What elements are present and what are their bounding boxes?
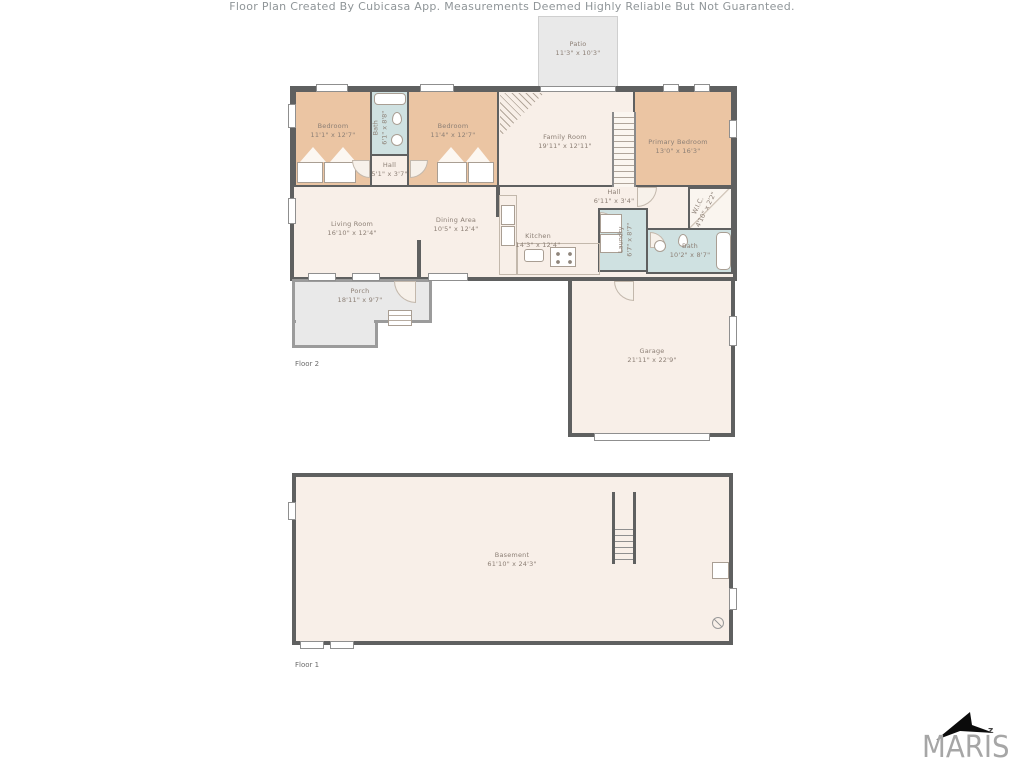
- kitchen-sink-icon: [524, 249, 544, 262]
- room-label-hall-2: Hall6'11" x 3'4": [592, 188, 636, 207]
- maris-logo: z MARIS: [922, 712, 1022, 766]
- room-label-patio: Patio11'3" x 10'3": [540, 40, 616, 59]
- maris-logo-text: MARIS: [922, 730, 1010, 765]
- window: [729, 588, 737, 610]
- window: [729, 316, 737, 346]
- porch-join-patch: [296, 317, 374, 325]
- window: [288, 104, 296, 128]
- room-label-garage: Garage21'11" x 22'9": [612, 347, 692, 366]
- room-label-bath-2: Bath10'2" x 8'7": [660, 242, 720, 261]
- room-label-living-room: Living Room16'10" x 12'4": [312, 220, 392, 239]
- garage-door-opening: [594, 433, 710, 441]
- room-label-bedroom-2: Bedroom11'4" x 12'7": [415, 122, 491, 141]
- room-label-basement: Basement61'10" x 24'3": [472, 551, 552, 570]
- patio-slider-door: [540, 86, 616, 92]
- floor2-caption: Floor 2: [295, 360, 319, 368]
- window: [300, 641, 324, 649]
- staircase-rail: [633, 492, 636, 564]
- window: [729, 120, 737, 138]
- floor1-caption: Floor 1: [295, 661, 319, 669]
- room-label-bedroom-1: Bedroom11'1" x 12'7": [297, 122, 369, 141]
- room-label-wic: W.I.C.4'10" x 2'2": [694, 193, 710, 223]
- porch-steps: [388, 310, 412, 326]
- window: [428, 273, 468, 281]
- room-label-primary-bedroom: Primary Bedroom13'0" x 16'3": [633, 138, 723, 157]
- room-label-bath-1: Bath6'1" x 8'8": [372, 108, 388, 148]
- closet: [324, 162, 356, 183]
- room-label-family-room: Family Room19'11" x 12'11": [520, 133, 610, 152]
- window: [308, 273, 336, 281]
- bathtub-icon: [374, 93, 406, 105]
- room-label-laundry: Laundry6'7" x 8'7": [618, 222, 632, 258]
- utility-box: [712, 562, 729, 579]
- floor-drain-icon: [712, 617, 724, 629]
- room-label-porch: Porch18'11" x 9'7": [330, 287, 390, 306]
- window: [663, 84, 679, 92]
- window: [352, 273, 380, 281]
- room-label-dining-area: Dining Area10'5" x 12'4": [420, 216, 492, 235]
- room-label-kitchen: Kitchen14'3" x 12'4": [505, 232, 571, 251]
- window: [288, 198, 296, 224]
- closet: [468, 162, 494, 183]
- staircase-lower: [615, 524, 633, 564]
- disclaimer-text: Floor Plan Created By Cubicasa App. Meas…: [0, 0, 1024, 13]
- window: [330, 641, 354, 649]
- window: [316, 84, 348, 92]
- sink-icon: [391, 134, 403, 146]
- room-label-hall-1: Hall5'1" x 3'7": [370, 161, 409, 180]
- closet: [297, 162, 323, 183]
- floorplan-page: Patio11'3" x 10'3" Garage21'11" x 22'9" …: [0, 0, 1024, 768]
- closet: [437, 162, 467, 183]
- toilet-icon: [392, 112, 402, 125]
- window: [694, 84, 710, 92]
- window: [288, 502, 296, 520]
- window: [420, 84, 454, 92]
- pantry-cabinet: [501, 205, 515, 225]
